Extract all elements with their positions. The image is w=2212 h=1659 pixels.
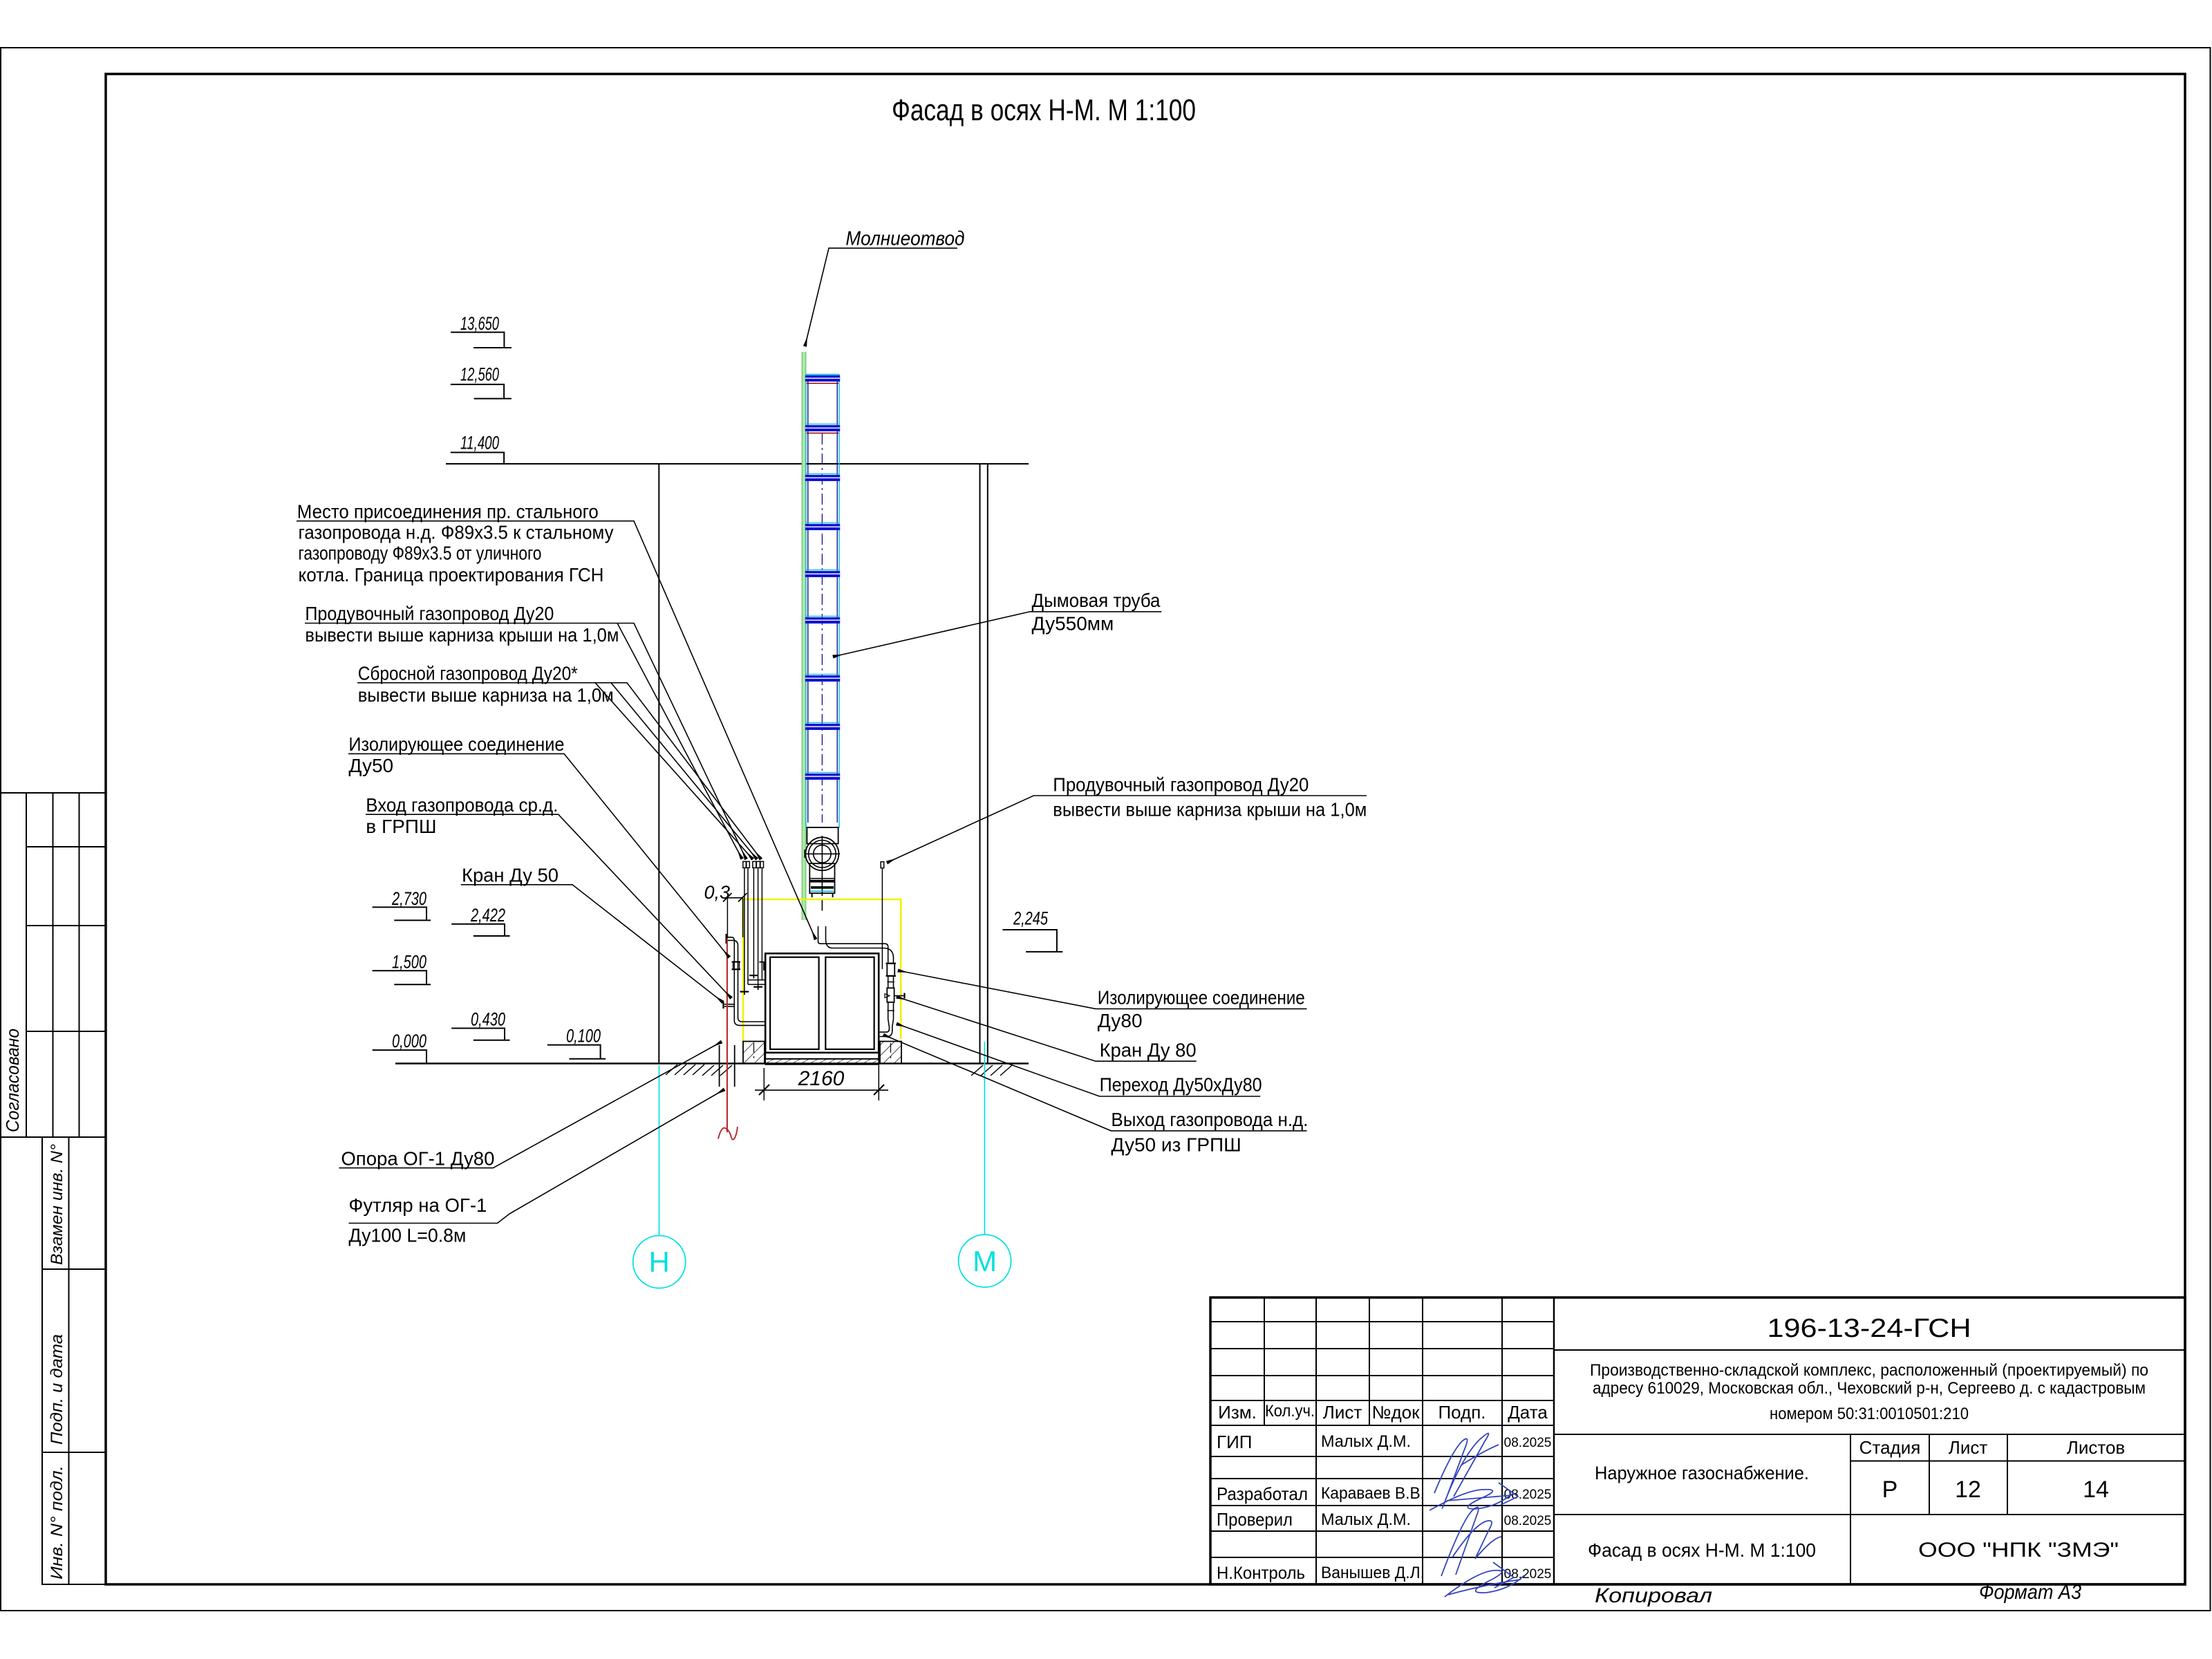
svg-text:Молниеотвод: Молниеотвод bbox=[845, 228, 964, 250]
svg-text:12,560: 12,560 bbox=[460, 364, 499, 385]
svg-text:Изм.: Изм. bbox=[1218, 1402, 1257, 1423]
svg-text:Фасад в осях Н-М. М 1:100: Фасад в осях Н-М. М 1:100 bbox=[892, 93, 1196, 127]
svg-text:Футляр на ОГ-1: Футляр на ОГ-1 bbox=[348, 1194, 487, 1216]
svg-text:08.2025: 08.2025 bbox=[1504, 1436, 1552, 1450]
svg-text:адресу 610029, Московская обл.: адресу 610029, Московская обл., Чеховски… bbox=[1593, 1379, 2146, 1398]
svg-text:Место присоединения пр. стальн: Место присоединения пр. стального bbox=[297, 501, 599, 523]
svg-text:Разработал: Разработал bbox=[1217, 1483, 1308, 1504]
svg-text:Согласовано: Согласовано bbox=[2, 1029, 23, 1132]
svg-text:2160: 2160 bbox=[798, 1067, 845, 1090]
svg-text:Ду50 из ГРПШ: Ду50 из ГРПШ bbox=[1111, 1134, 1241, 1156]
svg-text:Изолирующее соединение: Изолирующее соединение bbox=[348, 733, 564, 755]
svg-text:котла. Граница проектирования: котла. Граница проектирования ГСН bbox=[299, 564, 604, 585]
svg-text:Караваев В.В.: Караваев В.В. bbox=[1321, 1484, 1425, 1503]
svg-text:вывести выше карниза крыши на: вывести выше карниза крыши на 1,0м bbox=[305, 624, 619, 646]
svg-text:08.2025: 08.2025 bbox=[1504, 1514, 1552, 1528]
svg-text:М: М bbox=[973, 1245, 997, 1277]
svg-text:Кол.уч.: Кол.уч. bbox=[1265, 1402, 1315, 1421]
svg-text:Взамен инв. N°: Взамен инв. N° bbox=[48, 1144, 66, 1265]
svg-text:Изолирующее соединение: Изолирующее соединение bbox=[1098, 987, 1305, 1009]
svg-text:Формат А3: Формат А3 bbox=[1979, 1581, 2081, 1604]
svg-text:газопроводу Ф89х3.5 от уличног: газопроводу Ф89х3.5 от уличного bbox=[299, 542, 542, 563]
svg-text:Подп. и дата: Подп. и дата bbox=[48, 1334, 66, 1445]
svg-text:Р: Р bbox=[1882, 1477, 1898, 1503]
svg-text:0,100: 0,100 bbox=[566, 1026, 601, 1047]
svg-text:Переход Ду50хДу80: Переход Ду50хДу80 bbox=[1100, 1074, 1262, 1096]
svg-text:Дымовая труба: Дымовая труба bbox=[1032, 590, 1161, 611]
svg-text:Лист: Лист bbox=[1949, 1437, 1988, 1458]
svg-text:Ду50: Ду50 bbox=[348, 755, 393, 776]
svg-text:Инв. N° подл.: Инв. N° подл. bbox=[48, 1465, 66, 1580]
svg-text:вывести выше карниза на 1,0м: вывести выше карниза на 1,0м bbox=[358, 684, 614, 706]
svg-text:Наружное газоснабжение.: Наружное газоснабжение. bbox=[1595, 1463, 1809, 1483]
svg-text:Продувочный газопровод Ду20: Продувочный газопровод Ду20 bbox=[305, 603, 554, 624]
svg-text:Фасад в осях Н-М. М 1:100: Фасад в осях Н-М. М 1:100 bbox=[1588, 1539, 1816, 1561]
svg-text:ООО "НПК "ЗМЭ": ООО "НПК "ЗМЭ" bbox=[1918, 1539, 2119, 1562]
svg-text:12: 12 bbox=[1955, 1477, 1981, 1503]
svg-text:Кран Ду 80: Кран Ду 80 bbox=[1100, 1039, 1197, 1060]
svg-text:Малых Д.М.: Малых Д.М. bbox=[1321, 1432, 1411, 1451]
svg-text:2,730: 2,730 bbox=[391, 888, 427, 909]
svg-text:Производственно-складской комп: Производственно-складской комплекс, расп… bbox=[1590, 1361, 2148, 1380]
svg-text:Вход газопровода ср.д.: Вход газопровода ср.д. bbox=[366, 794, 558, 816]
svg-text:13,650: 13,650 bbox=[460, 313, 499, 334]
svg-text:Стадия: Стадия bbox=[1859, 1437, 1921, 1458]
svg-text:Выход газопровода н.д.: Выход газопровода н.д. bbox=[1111, 1109, 1308, 1130]
svg-text:вывести выше карниза крыши на: вывести выше карниза крыши на 1,0м bbox=[1053, 799, 1367, 821]
svg-text:Опора ОГ-1 Ду80: Опора ОГ-1 Ду80 bbox=[341, 1148, 494, 1170]
svg-text:Подп.: Подп. bbox=[1438, 1402, 1485, 1423]
svg-text:ГИП: ГИП bbox=[1217, 1432, 1252, 1452]
svg-text:Сбросной газопровод Ду20*: Сбросной газопровод Ду20* bbox=[358, 662, 578, 684]
svg-text:Продувочный газопровод Ду20: Продувочный газопровод Ду20 bbox=[1053, 774, 1309, 795]
svg-text:196-13-24-ГСН: 196-13-24-ГСН bbox=[1768, 1314, 1971, 1343]
svg-text:1,500: 1,500 bbox=[392, 952, 427, 973]
svg-text:Н: Н bbox=[649, 1246, 670, 1278]
svg-text:газопровода н.д. Ф89х3.5 к ста: газопровода н.д. Ф89х3.5 к стальному bbox=[299, 522, 614, 543]
svg-text:Кран Ду 50: Кран Ду 50 bbox=[462, 865, 559, 886]
svg-text:Ванышев Д.Л.: Ванышев Д.Л. bbox=[1321, 1564, 1425, 1582]
svg-text:Дата: Дата bbox=[1508, 1402, 1548, 1423]
svg-text:Н.Контроль: Н.Контроль bbox=[1217, 1564, 1305, 1583]
svg-text:0,430: 0,430 bbox=[471, 1009, 505, 1030]
svg-text:11,400: 11,400 bbox=[460, 432, 499, 453]
svg-text:Копировал: Копировал bbox=[1595, 1584, 1712, 1607]
svg-text:Листов: Листов bbox=[2067, 1437, 2125, 1458]
svg-text:Ду80: Ду80 bbox=[1098, 1010, 1143, 1031]
svg-text:Лист: Лист bbox=[1323, 1402, 1362, 1423]
svg-text:в ГРПШ: в ГРПШ bbox=[366, 816, 436, 837]
svg-text:2,245: 2,245 bbox=[1013, 908, 1048, 929]
svg-text:номером 50:31:0010501:210: номером 50:31:0010501:210 bbox=[1770, 1405, 1969, 1423]
svg-text:Малых Д.М.: Малых Д.М. bbox=[1321, 1510, 1411, 1529]
svg-text:0,3: 0,3 bbox=[704, 882, 730, 903]
svg-text:Ду550мм: Ду550мм bbox=[1032, 613, 1114, 635]
svg-text:2,422: 2,422 bbox=[470, 905, 505, 926]
svg-text:Ду100 L=0.8м: Ду100 L=0.8м bbox=[348, 1224, 466, 1246]
svg-text:14: 14 bbox=[2083, 1477, 2109, 1503]
svg-text:Проверил: Проверил bbox=[1217, 1509, 1293, 1530]
svg-text:№док: №док bbox=[1372, 1402, 1421, 1423]
svg-text:0,000: 0,000 bbox=[392, 1031, 427, 1051]
